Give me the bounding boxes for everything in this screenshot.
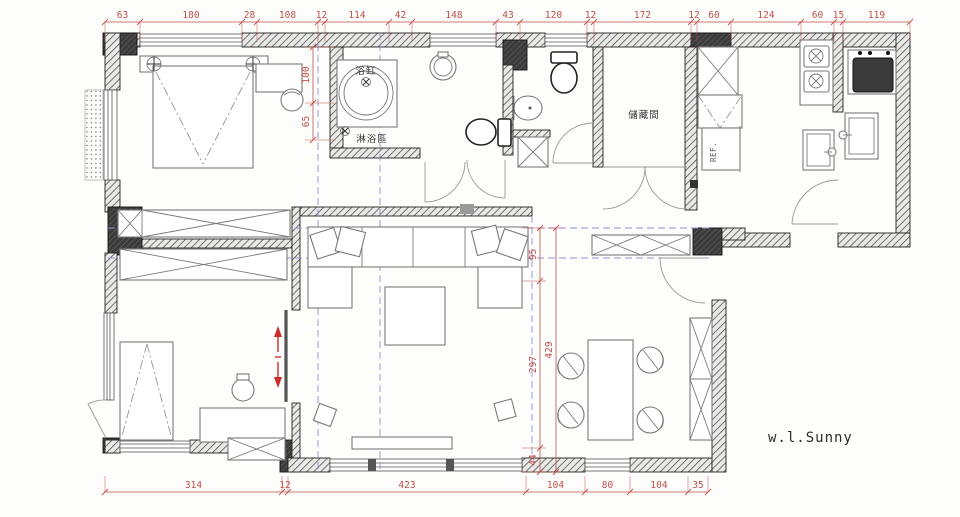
window-dining-bottom: [585, 459, 630, 471]
dining-chair: [637, 407, 663, 433]
stove: [800, 40, 833, 105]
dimension-label: 35: [692, 480, 703, 491]
door-entry[interactable]: [660, 258, 705, 303]
wall-segment: [838, 233, 910, 247]
cabinet-small-wc: [518, 137, 548, 167]
dining-chair: [558, 402, 584, 428]
dimension-label: 60: [708, 10, 720, 21]
wall-segment: [105, 440, 120, 453]
stool: [281, 89, 303, 111]
dining-chair: [637, 347, 663, 373]
dimension-label: 104: [547, 480, 564, 491]
refrigerator: REF.: [702, 126, 740, 172]
tv-console: [352, 437, 452, 449]
washbasin-round: [430, 52, 456, 80]
wardrobe-cabinet: [120, 249, 287, 280]
sliding-direction-arrows: [274, 326, 282, 388]
wall-mounted-box: [460, 204, 474, 214]
wall-segment: [105, 33, 120, 90]
window-bedroom2-left: [104, 313, 114, 400]
dimension-label: 60: [812, 10, 824, 21]
side-table: [494, 399, 516, 421]
window-living-bottom: [330, 459, 522, 471]
window-mullion: [446, 459, 454, 471]
dimension-label: 104: [650, 480, 667, 491]
toilet-2: [551, 52, 577, 93]
dimension-label: 43: [502, 10, 513, 21]
dining-chair: [558, 353, 584, 379]
dimension-label: 423: [398, 480, 415, 491]
cooktop-counter: [848, 50, 896, 94]
door-bathroom[interactable]: [425, 162, 465, 202]
dimension-label: 44: [528, 454, 539, 466]
dimension-label: 63: [117, 10, 128, 21]
shoe-cabinet: [592, 235, 690, 255]
kitchen-sink-2: [803, 130, 836, 170]
dimension-label: 314: [185, 480, 202, 491]
shower-label: 淋浴區: [356, 133, 388, 145]
wall-segment: [330, 148, 420, 158]
window-mullion: [368, 459, 376, 471]
dimension-label: 80: [602, 480, 614, 491]
wall-segment: [105, 253, 117, 313]
dimension-label: 148: [445, 10, 462, 21]
dining-table: [588, 340, 633, 440]
window-bedroom1-top: [140, 34, 242, 46]
dimension-label: 172: [634, 10, 651, 21]
wall-segment: [288, 458, 330, 472]
wall-segment: [587, 33, 697, 47]
dimension-label: 42: [395, 10, 406, 21]
tall-cabinet-dining: [690, 318, 712, 440]
wall-segment: [242, 33, 430, 47]
vase: [232, 379, 254, 401]
window-bedroom2-bottom: [120, 441, 190, 452]
dimension-label: 12: [316, 10, 327, 21]
pantry-fold: [698, 95, 742, 128]
dimension-label: 114: [348, 10, 365, 21]
kitchen-tall-cabinet: [698, 47, 738, 95]
dimension-label: 119: [868, 10, 885, 21]
wall-segment: [292, 403, 300, 458]
bed-master: [140, 56, 268, 168]
coffee-table: [385, 287, 445, 345]
wall-segment: [722, 228, 745, 240]
dimension-label: 65: [301, 116, 312, 127]
nightstand: [256, 64, 302, 92]
floor-plan-svg: REF.: [0, 0, 960, 517]
dimension-label: 100: [301, 66, 312, 83]
door-wc2[interactable]: [553, 123, 593, 163]
wall-segment: [833, 33, 843, 112]
dimension-label: 28: [244, 10, 256, 21]
storage-label: 儲藏間: [628, 109, 660, 121]
window-wc-top: [430, 34, 496, 46]
bathtub-label: 浴缸: [355, 65, 376, 77]
entry-wall-block: [693, 228, 722, 255]
kitchen-sink: [839, 113, 878, 159]
dimension-label: 120: [545, 10, 562, 21]
door-kitchen[interactable]: [792, 180, 838, 224]
dimension-label: 429: [544, 341, 555, 358]
dimension-label: 12: [688, 10, 699, 21]
signature: w.l.Sunny: [768, 430, 853, 446]
toilet-1: [466, 119, 511, 146]
dimension-label: 124: [757, 10, 774, 21]
wall-segment: [292, 207, 300, 310]
dimension-label: 15: [833, 10, 844, 21]
door-bedroom2[interactable]: [88, 400, 106, 438]
dimension-label: 108: [279, 10, 296, 21]
dimension-label: 297: [528, 356, 539, 373]
bed-single: [120, 342, 173, 440]
side-table: [313, 403, 336, 426]
dimension-label: 12: [585, 10, 596, 21]
switch-box: [690, 180, 698, 188]
wall-segment: [630, 458, 712, 472]
wall-segment: [300, 207, 532, 216]
desk: [200, 374, 285, 442]
screen-panel: [85, 90, 103, 180]
fridge-label: REF.: [709, 142, 718, 162]
wall-segment: [712, 300, 726, 472]
door-wc1[interactable]: [467, 160, 505, 198]
wall-segment: [513, 130, 550, 137]
dimension-label: 95: [528, 249, 539, 260]
window-bedroom1-left: [85, 90, 117, 180]
wardrobe-cabinet: [118, 210, 290, 237]
dimension-label: 180: [182, 10, 199, 21]
wall-lamp-icon: [147, 57, 161, 71]
window-storage-top: [545, 34, 587, 46]
cabinet-under-window: [228, 438, 285, 460]
floor-plan-canvas: REF.: [0, 0, 960, 517]
door-storage-double[interactable]: [603, 167, 687, 209]
washbasin-wall: [514, 96, 542, 120]
wall-segment: [593, 47, 603, 167]
wall-segment: [896, 33, 910, 233]
dimension-label: 12: [279, 480, 290, 491]
wall-segment: [142, 239, 292, 248]
